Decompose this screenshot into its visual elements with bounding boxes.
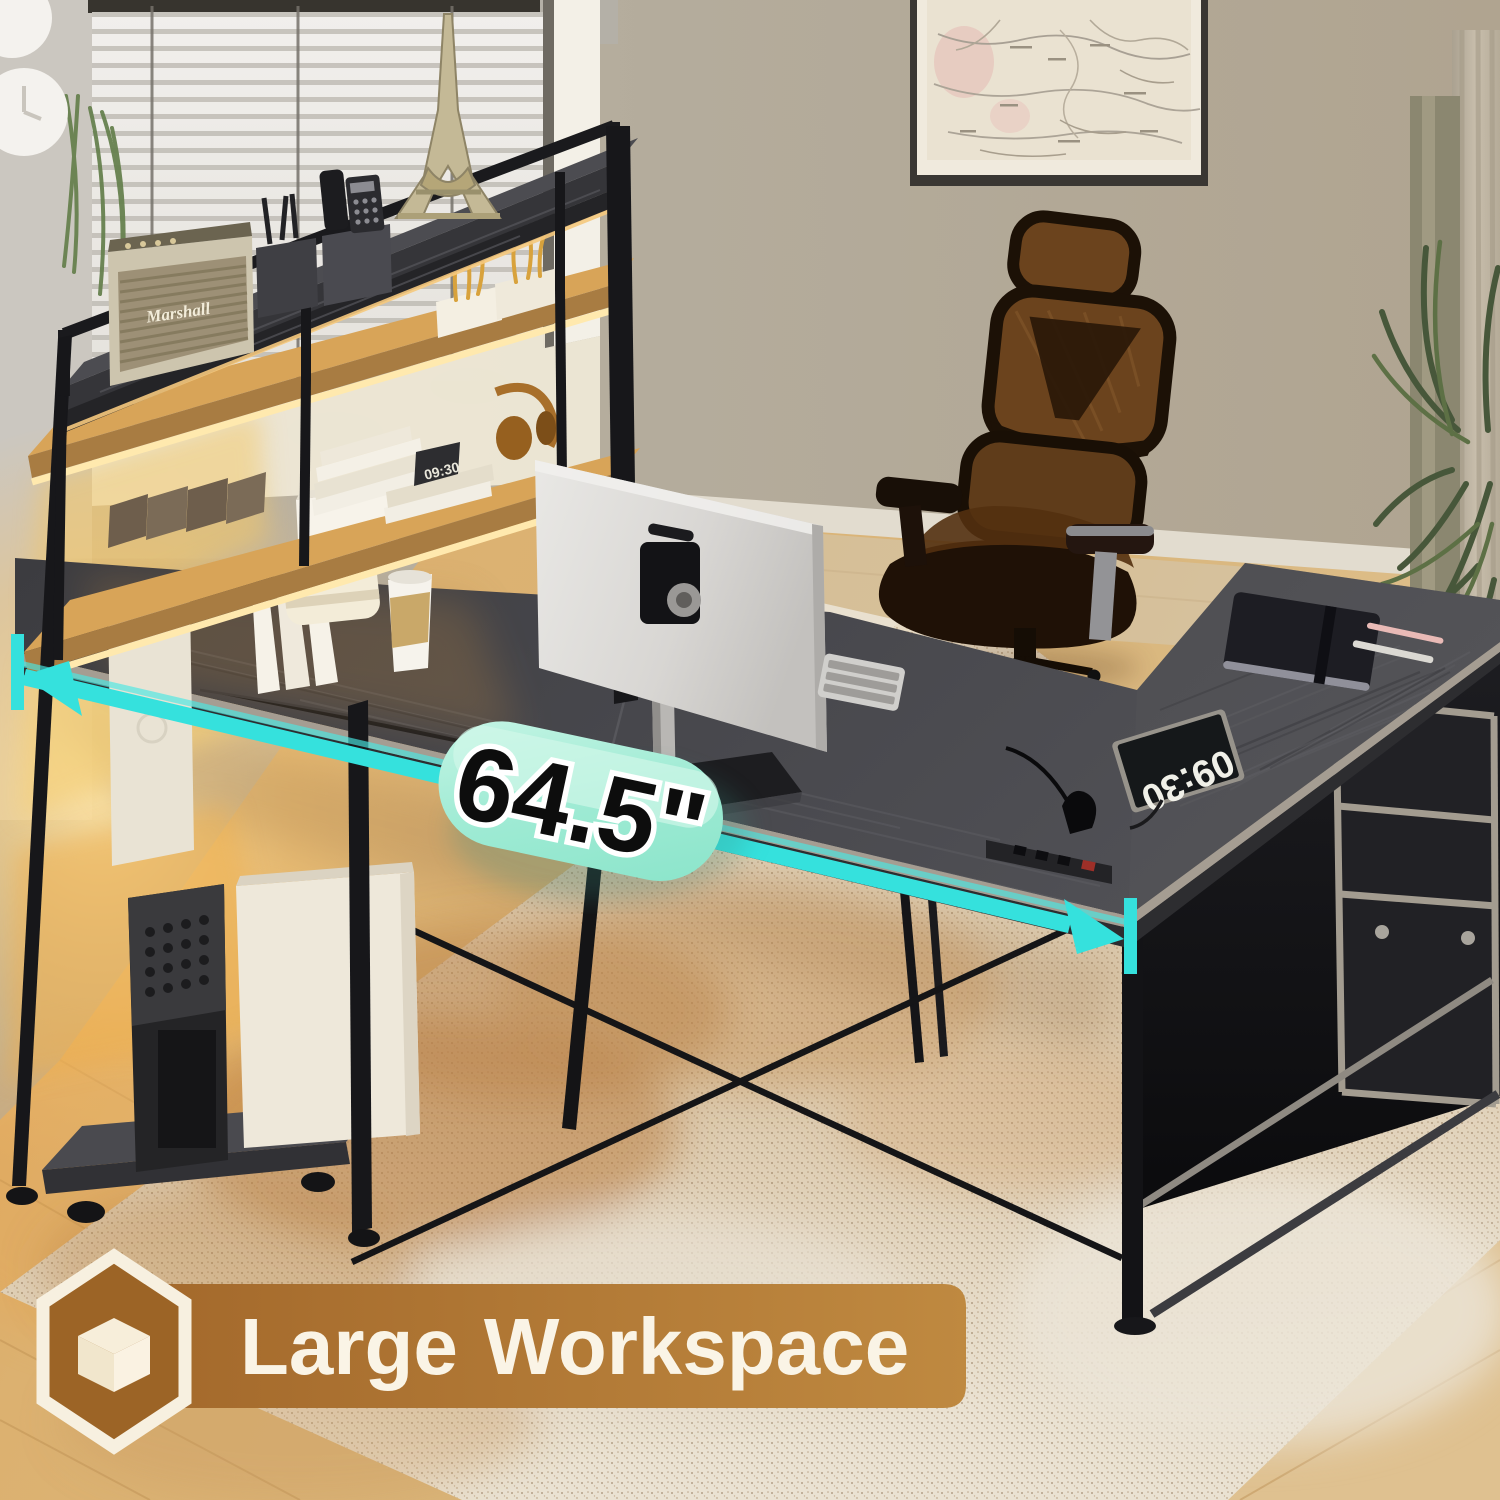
svg-text:LargeWorkspace: LargeWorkspace <box>240 1302 909 1391</box>
